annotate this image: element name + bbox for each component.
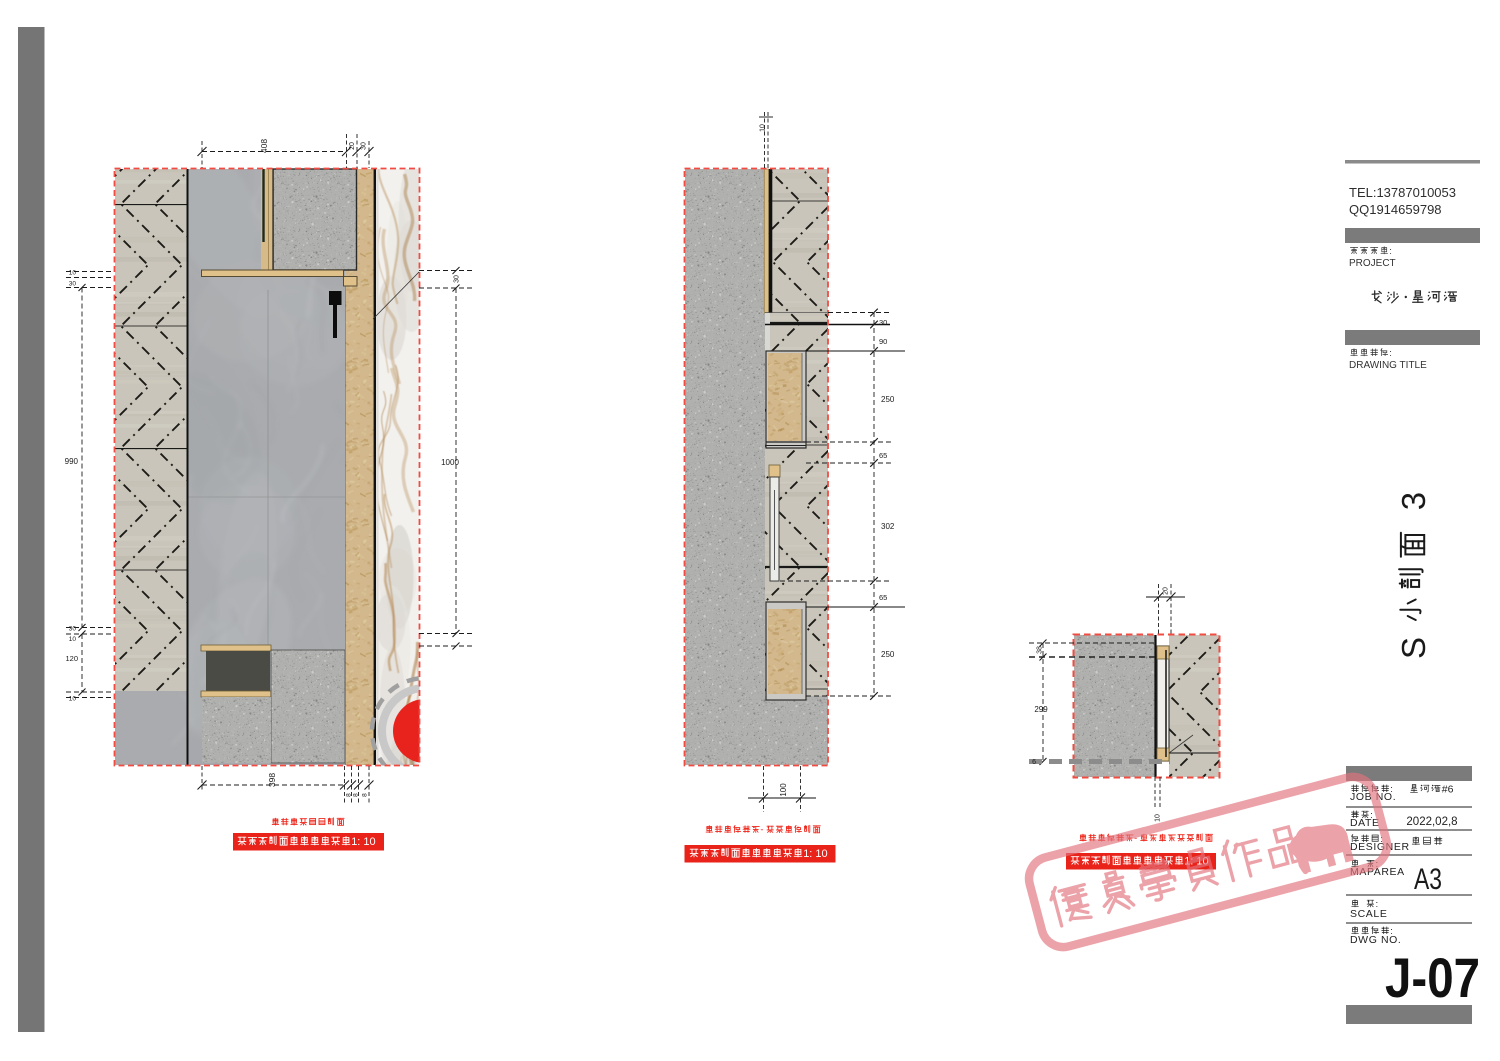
svg-text:DESIGNER: DESIGNER: [1350, 841, 1410, 853]
svg-text:398: 398: [267, 773, 277, 787]
svg-text:DRAWING TITLE: DRAWING TITLE: [1349, 360, 1427, 371]
svg-text::: :: [1389, 246, 1392, 257]
svg-text:10: 10: [1154, 814, 1161, 822]
svg-text:J-07: J-07: [1385, 946, 1480, 1009]
svg-text:250: 250: [881, 395, 895, 404]
svg-text:TEL:13787010053: TEL:13787010053: [1349, 185, 1456, 200]
svg-text:DATE: DATE: [1350, 817, 1380, 829]
svg-text:30: 30: [453, 275, 460, 283]
svg-text:8: 8: [345, 793, 352, 797]
svg-text:10: 10: [759, 124, 766, 132]
svg-text:990: 990: [65, 457, 79, 466]
svg-text:S: S: [1395, 637, 1432, 659]
svg-text:20: 20: [1162, 587, 1169, 595]
svg-text:PROJECT: PROJECT: [1349, 258, 1396, 269]
svg-text:250: 250: [881, 650, 895, 659]
svg-text:SCALE: SCALE: [1350, 908, 1387, 920]
svg-text:20: 20: [349, 142, 356, 150]
svg-text:30: 30: [69, 626, 77, 633]
svg-text:8: 8: [361, 793, 368, 797]
svg-text:65: 65: [879, 451, 887, 460]
svg-text:10: 10: [69, 270, 77, 277]
svg-text:65: 65: [879, 593, 887, 602]
svg-text:QQ1914659798: QQ1914659798: [1349, 202, 1442, 217]
svg-text:10: 10: [69, 636, 77, 643]
svg-text:302: 302: [881, 522, 895, 531]
svg-text:100: 100: [779, 783, 788, 797]
svg-text:30: 30: [879, 318, 887, 327]
svg-text:38: 38: [1036, 646, 1043, 654]
svg-text:1: 10: 1: 10: [803, 848, 827, 860]
svg-text:10: 10: [69, 696, 77, 703]
svg-text:-: -: [760, 825, 763, 835]
svg-text:30: 30: [360, 142, 367, 150]
svg-text:1000: 1000: [441, 458, 459, 467]
svg-text:299: 299: [1034, 705, 1048, 714]
svg-text::: :: [1389, 348, 1392, 359]
svg-text:2022,02,8: 2022,02,8: [1406, 816, 1457, 828]
svg-text:A3: A3: [1414, 863, 1442, 896]
svg-text:120: 120: [65, 654, 78, 663]
svg-text:30: 30: [69, 281, 77, 288]
svg-text:6: 6: [1032, 759, 1036, 766]
svg-text:#6: #6: [1442, 784, 1454, 796]
svg-text:3: 3: [1395, 492, 1432, 510]
svg-text:90: 90: [879, 337, 887, 346]
svg-text:8: 8: [352, 793, 359, 797]
svg-text:1: 10: 1: 10: [351, 836, 375, 848]
svg-text:408: 408: [259, 139, 269, 153]
svg-text:DWG NO.: DWG NO.: [1350, 934, 1401, 946]
